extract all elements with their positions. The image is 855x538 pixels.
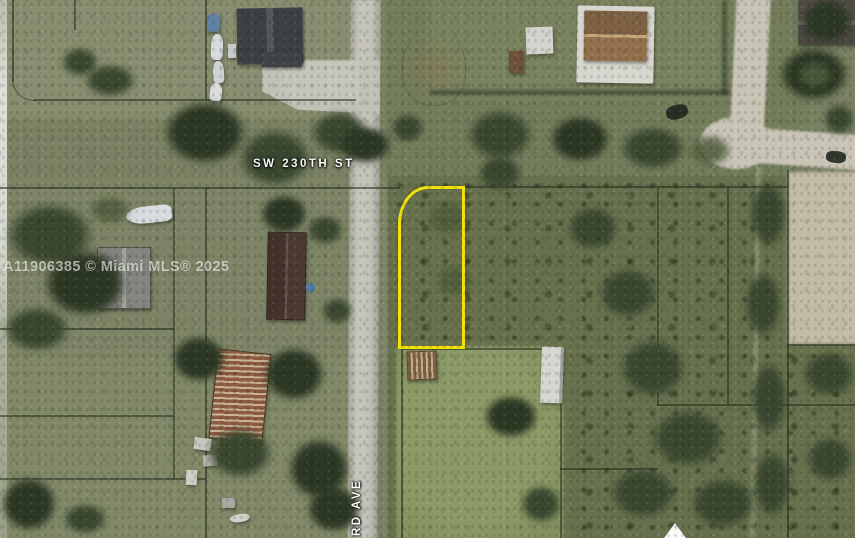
tree-canopy [540, 108, 620, 170]
fence-line [205, 0, 207, 100]
lumber-stack [407, 350, 438, 380]
tree-canopy [163, 328, 235, 390]
palm-cluster [0, 468, 66, 538]
tree-canopy [818, 98, 855, 140]
fence-line [12, 0, 14, 82]
tree-row [746, 438, 798, 530]
palm-fronds [790, 55, 840, 95]
tree-canopy [195, 418, 285, 488]
hedge-row [430, 90, 730, 95]
dirt-track-loop [402, 32, 466, 106]
tree-canopy [470, 148, 530, 198]
palm-cluster [80, 190, 140, 230]
hedge-row [722, 0, 727, 95]
scrub-clump [608, 328, 698, 408]
fence-line [727, 188, 729, 404]
fence-line [74, 0, 76, 30]
blue-barrel [306, 283, 315, 292]
tree-canopy [316, 293, 358, 329]
trailer [228, 44, 236, 58]
tree-canopy [680, 128, 740, 173]
tree-canopy [385, 108, 430, 148]
scrub-clump [588, 258, 668, 328]
house-wing [262, 52, 302, 67]
shed-small [222, 498, 235, 508]
house-roof-maroon [266, 232, 307, 321]
tree-row [744, 348, 794, 448]
lawn-tree [475, 388, 547, 445]
tree-row [738, 258, 788, 350]
scrub-clump [558, 198, 628, 258]
street-label-sw-230th-st: SW 230TH ST [253, 158, 355, 170]
tree-canopy [300, 210, 350, 250]
triangle-marker [664, 523, 686, 538]
shed-lawn [540, 347, 564, 404]
tree-canopy [253, 338, 335, 410]
boat [211, 34, 224, 60]
street-label-rd-ave: RD AVE [351, 479, 363, 536]
fence-line [401, 350, 403, 538]
fence-line [0, 415, 174, 417]
dirt-clearing-right [788, 172, 855, 344]
scrub-clump [598, 458, 688, 528]
vehicle-dark [826, 150, 847, 164]
fence-line [0, 187, 400, 189]
fence-line [173, 188, 175, 480]
tree-canopy [798, 428, 855, 490]
shed-brown [509, 51, 524, 73]
house-roof-brown [584, 10, 648, 61]
tree-row [743, 168, 793, 260]
tree-canopy [793, 343, 855, 405]
property-boundary [398, 186, 465, 349]
tree-canopy [75, 58, 145, 103]
tree-canopy [55, 498, 115, 538]
boat [212, 61, 224, 84]
shed-white [526, 27, 554, 55]
boat-blue-tarp [206, 14, 220, 33]
lawn-tree [513, 478, 569, 530]
mls-watermark: A11906385 © Miami MLS® 2025 [3, 259, 229, 275]
aerial-photo: SW 230TH ST RD AVE A11906385 © Miami MLS… [0, 0, 855, 538]
shed-small [186, 470, 198, 486]
